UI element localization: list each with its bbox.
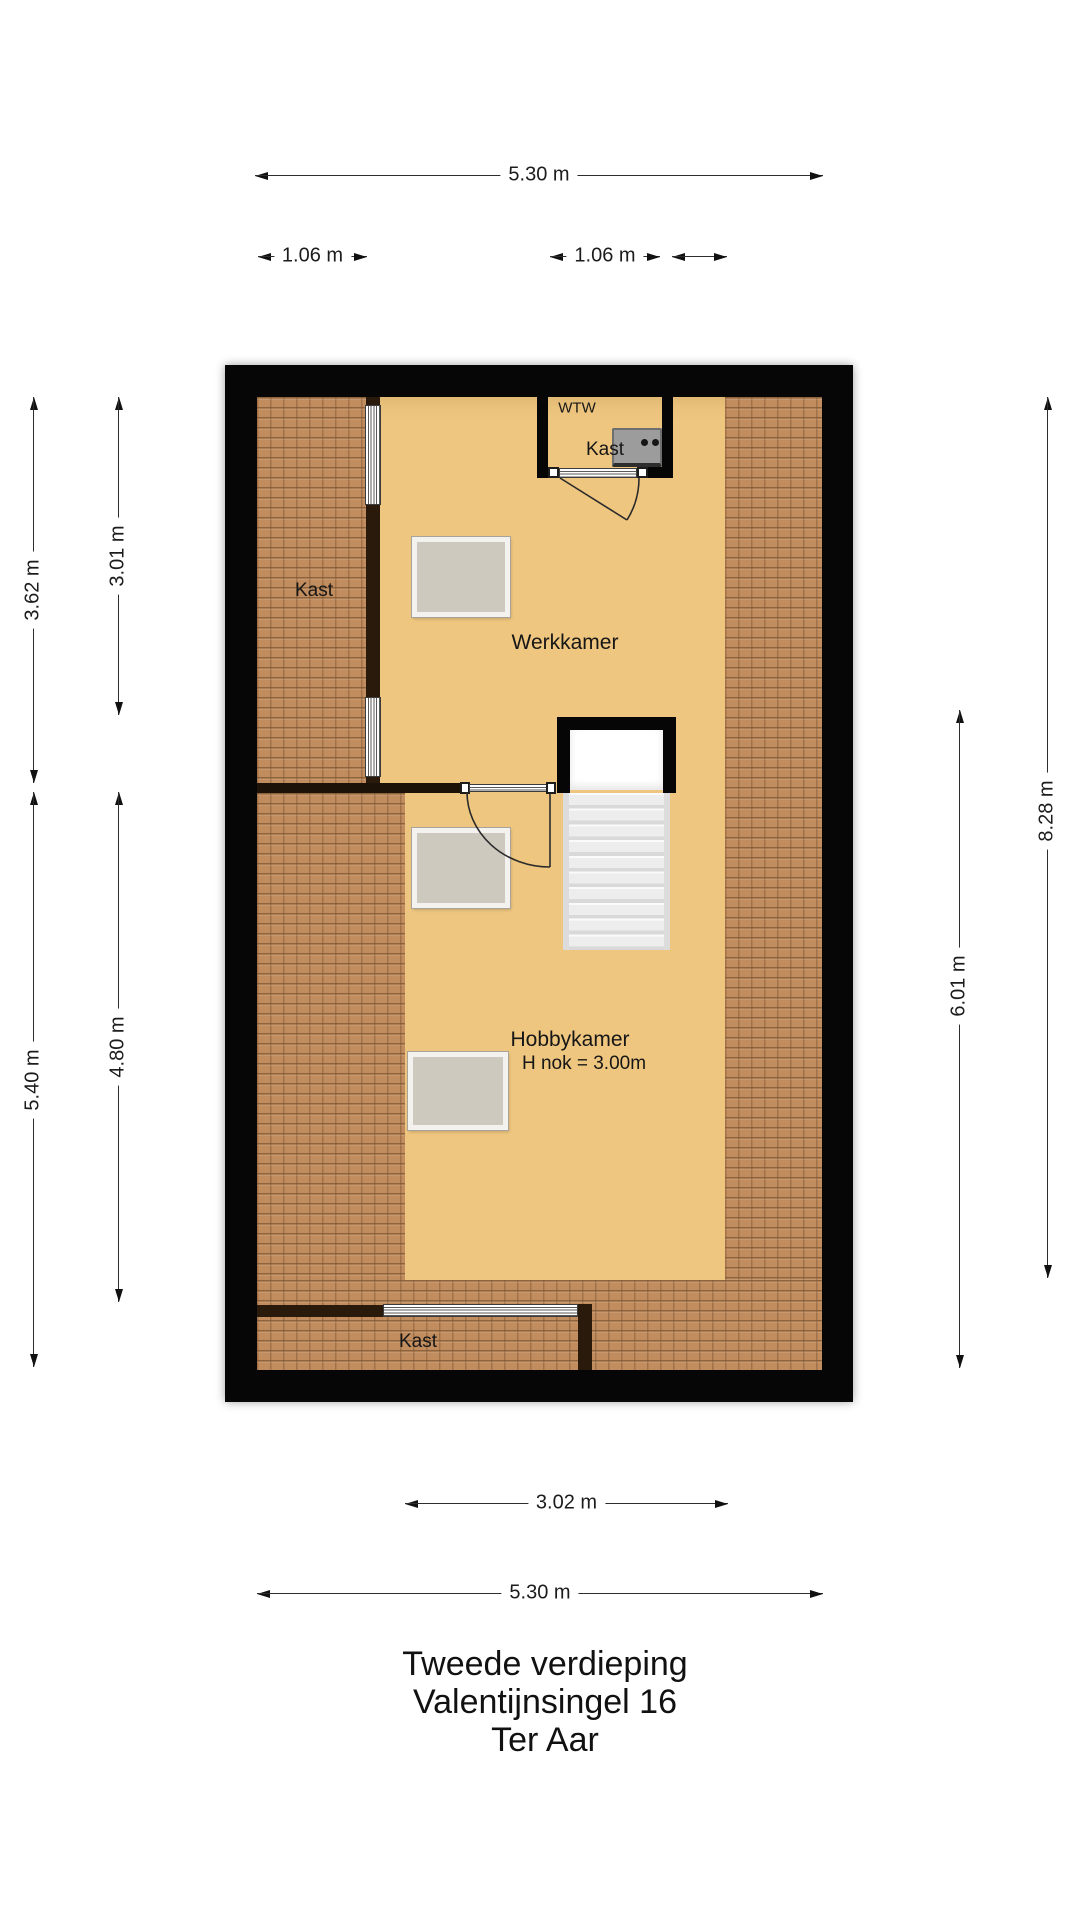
door-post — [637, 467, 648, 478]
dimension-left-upper-inner: 3.01 m — [114, 397, 123, 715]
dimension-label: 1.06 m — [274, 245, 351, 268]
wtw-label: WTW — [558, 400, 595, 417]
dimension-bottom-inner: 3.02 m — [405, 1499, 728, 1508]
door-left-closet-lower — [365, 697, 381, 777]
arrow-right-icon — [810, 1590, 823, 1598]
wall-bottom-closet — [257, 1305, 383, 1317]
door-left-closet-upper — [365, 405, 381, 505]
dimension-top-unlabeled-segment — [672, 252, 727, 261]
dimension-label: 6.01 m — [948, 948, 971, 1025]
arrow-down-icon — [1044, 1265, 1052, 1278]
staircase — [563, 793, 670, 950]
arrow-right-icon — [714, 253, 727, 261]
dimension-top-right-segment: 1.06 m — [550, 252, 660, 261]
desk-hobbykamer — [408, 1052, 508, 1130]
wtw-knob-icon — [641, 439, 648, 446]
wtw-closet-wall-right — [662, 397, 673, 478]
wtw-closet-wall-bottom — [645, 467, 673, 478]
hobbykamer-height-label: H nok = 3.00m — [522, 1053, 646, 1075]
kast-left-label: Kast — [295, 580, 333, 602]
stair-landing — [570, 730, 663, 790]
door-wtw-closet — [559, 468, 637, 478]
arrow-down-icon — [30, 770, 38, 783]
door-werkkamer-hobbykamer — [469, 784, 547, 792]
door-post — [548, 467, 559, 478]
dimension-left-lower-inner: 4.80 m — [114, 792, 123, 1302]
kast-bottom-label: Kast — [399, 1331, 437, 1353]
arrow-right-icon — [715, 1500, 728, 1508]
roof-slope-right — [725, 397, 822, 1280]
wall-bottom-closet-right — [578, 1304, 592, 1370]
wtw-closet-wall-left — [537, 397, 548, 478]
dimension-right-inner: 6.01 m — [955, 710, 964, 1368]
title-address: Valentijnsingel 16 — [402, 1683, 687, 1721]
dimension-label: 4.80 m — [107, 1008, 130, 1085]
title-floor: Tweede verdieping — [402, 1645, 687, 1683]
dimension-right-outer: 8.28 m — [1043, 397, 1052, 1278]
kast-top-label: Kast — [586, 439, 624, 461]
arrow-right-icon — [647, 253, 660, 261]
hobbykamer-label: Hobbykamer — [510, 1028, 629, 1052]
dimension-label: 3.02 m — [528, 1492, 605, 1515]
arrow-down-icon — [30, 1354, 38, 1367]
dimension-label: 3.01 m — [107, 517, 130, 594]
dimension-top-width: 5.30 m — [255, 171, 823, 180]
dimension-label: 1.06 m — [566, 245, 643, 268]
door-post — [546, 782, 556, 794]
floorplan-page: 5.30 m 1.06 m 1.06 m 3.62 m 3.01 m 5.40 … — [0, 0, 1080, 1920]
plan-title: Tweede verdieping Valentijnsingel 16 Ter… — [402, 1645, 687, 1759]
dimension-label: 5.30 m — [500, 164, 577, 187]
desk-landing — [412, 828, 510, 908]
dimension-bottom-width: 5.30 m — [257, 1589, 823, 1598]
desk-werkkamer — [412, 537, 510, 617]
dimension-label: 5.30 m — [501, 1582, 578, 1605]
dimension-top-left-segment: 1.06 m — [258, 252, 367, 261]
stairwell-wall-right — [663, 717, 676, 793]
roof-slope-left-lower — [257, 793, 405, 1280]
dimension-label: 3.62 m — [22, 551, 45, 628]
dimension-label: 8.28 m — [1036, 772, 1059, 849]
wall-divider — [257, 783, 460, 793]
stairwell-wall-left — [557, 717, 570, 793]
stairwell-wall-top — [557, 717, 676, 730]
wtw-knob-icon — [652, 439, 659, 446]
arrow-right-icon — [810, 172, 823, 180]
floor-area — [257, 397, 822, 1370]
dimension-left-upper-outer: 3.62 m — [29, 397, 38, 783]
roof-slope-bottom — [257, 1280, 822, 1370]
arrow-down-icon — [115, 702, 123, 715]
dimension-label: 5.40 m — [22, 1041, 45, 1118]
arrow-down-icon — [956, 1355, 964, 1368]
arrow-right-icon — [354, 253, 367, 261]
door-bottom-closet — [383, 1304, 578, 1317]
title-city: Ter Aar — [402, 1721, 687, 1759]
werkkamer-label: Werkkamer — [512, 631, 619, 655]
dimension-left-lower-outer: 5.40 m — [29, 792, 38, 1367]
arrow-down-icon — [115, 1289, 123, 1302]
building-outline — [225, 365, 853, 1402]
